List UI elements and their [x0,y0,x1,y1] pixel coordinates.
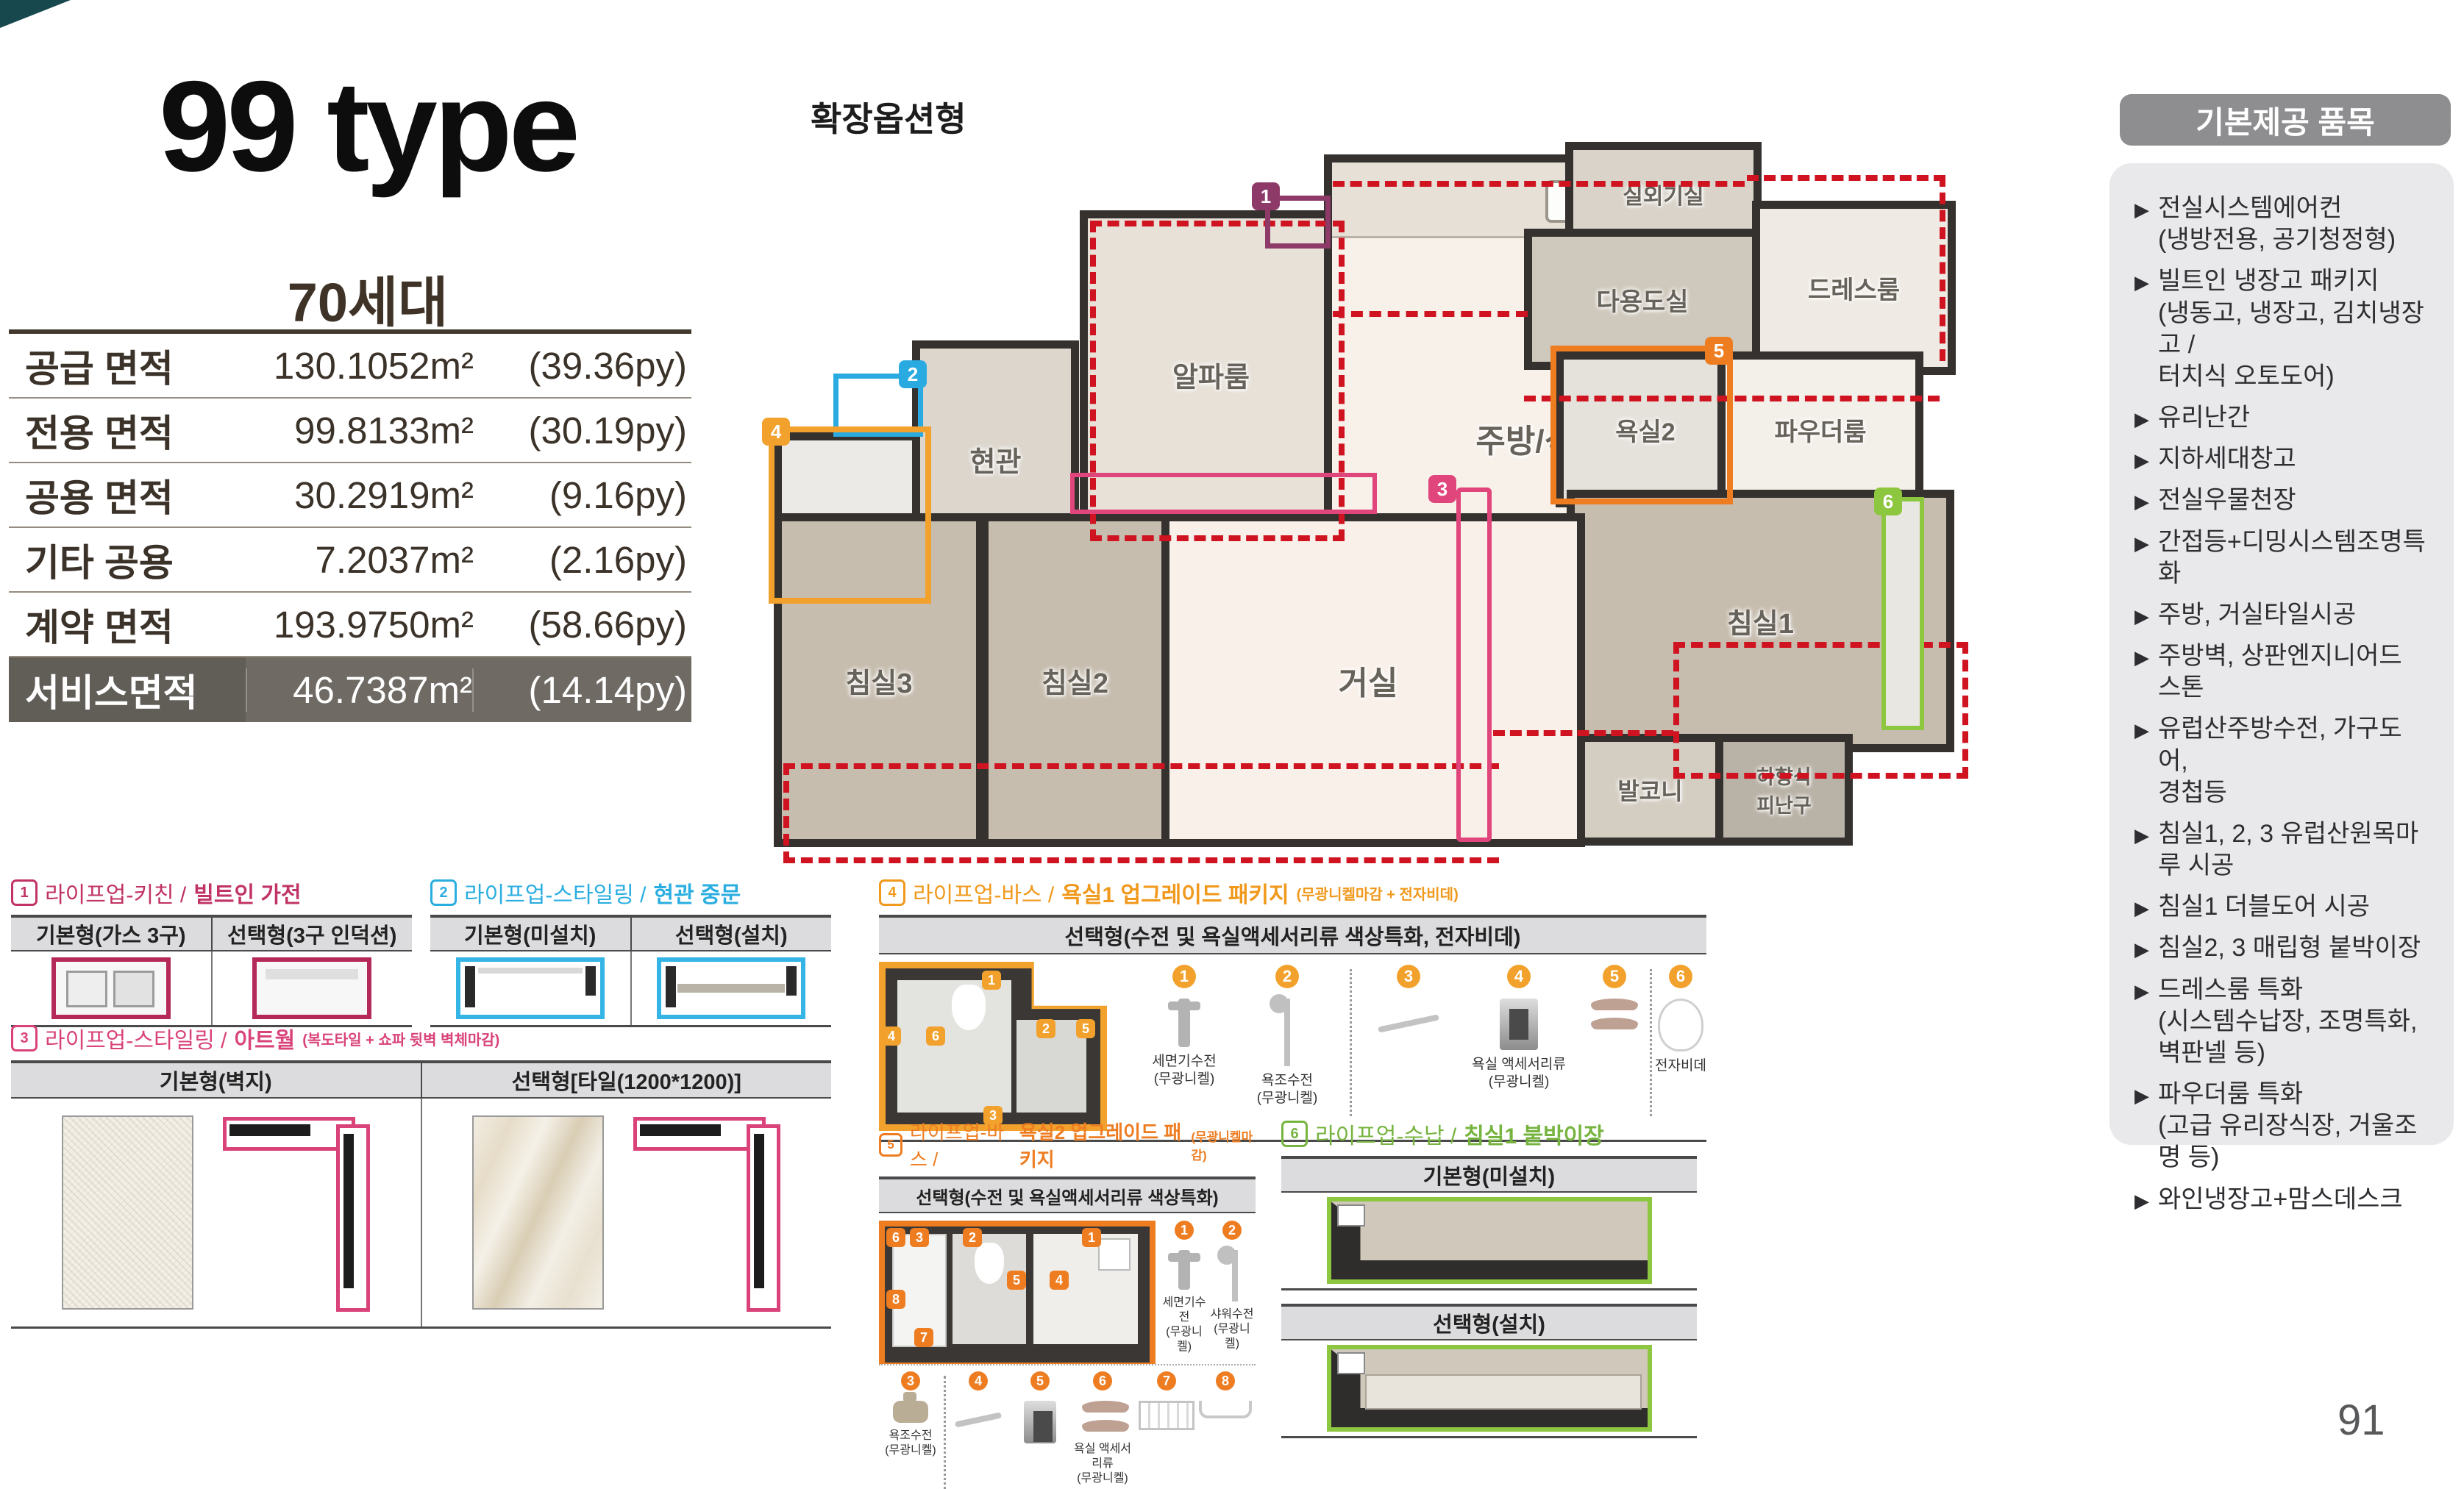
item-text: 유리난간 [2158,402,2250,434]
panel-title: 4 라이프업-바스 / 욕실1 업그레이드 패키지 (무광니켈마감 + 전자비데… [879,876,1706,909]
artwall-side-bar [336,1124,370,1312]
bullet-icon: ▶ [2134,532,2149,590]
item-label: 욕조수전 (무광니켈) [1239,1072,1335,1107]
mini-marker: 5 [1007,1271,1026,1290]
panel-body [1281,1340,1697,1438]
item-text: 파우더룸 특화 (고급 유리장식장, 거울조명 등) [2158,1079,2432,1174]
item-handle: 8 [1198,1371,1253,1418]
entry-plan-icon [456,957,605,1019]
area-label: 계약 면적 [9,597,246,651]
towel-bar-icon [955,1412,1002,1427]
area-sqm: 193.9750m² [246,603,474,646]
entry-plan-icon [657,957,805,1019]
bullet-icon: ▶ [2134,1189,2149,1215]
panel-category: 라이프업-스타일링 / [45,1022,227,1054]
bidet-icon [1658,999,1703,1051]
burner-icon [66,971,107,1007]
column-header: 선택형[타일(1200*1200)] [421,1063,832,1097]
bullet-icon: ▶ [2134,407,2149,434]
panel-header-row: 기본형(미설치) [1281,1156,1697,1193]
panel-header-row: 선택형(수전 및 욕실액세서리류 색상특화) [879,1176,1256,1213]
list-item: ▶전실우물천장 [2134,485,2432,516]
mini-marker: 6 [926,1026,945,1046]
mini-marker: 7 [914,1328,933,1347]
artwall-top-bar [633,1117,766,1151]
expansion-dashed-mid [1333,311,1528,317]
panel-title: 6 라이프업-수납 / 침실1 붙박이장 [1281,1118,1697,1150]
list-item: ▶유리난간 [2134,402,2432,434]
towel-rack-icon [1139,1401,1194,1430]
room-powder: 파우더룸 [1717,351,1923,507]
option-panel-bath1: 4 라이프업-바스 / 욕실1 업그레이드 패키지 (무광니켈마감 + 전자비데… [879,876,1706,1142]
item-number: 6 [1093,1371,1112,1390]
room-label: 침실1 [1727,601,1794,641]
panel-header-row: 선택형(설치) [1281,1304,1697,1340]
item-label: 욕실 액세서리류 (무광니켈) [1072,1442,1133,1486]
floor-plan-title: 확장옵션형 [811,93,966,141]
expansion-dashed-bottom [783,763,1499,863]
item-number: 1 [1175,1221,1194,1240]
bedroom1-plan-basic [1331,1201,1648,1279]
item-number: 1 [1172,965,1196,988]
mini-marker: 1 [982,971,1001,990]
brochure-page: 99 type 70세대 공급 면적 130.1052m² (39.36py) … [0,0,2464,1489]
item-text: 유럽산주방수전, 가구도어, 경첩등 [2158,713,2432,809]
tub-faucet-icon [893,1401,928,1423]
door-icon [1337,1204,1365,1226]
list-item: ▶빌트인 냉장고 패키지 (냉동고, 냉장고, 김치냉장고 / 터치식 오토도어… [2134,265,2432,393]
item-label: 세면기수전 (무광니켈) [1136,1053,1232,1088]
panel-name: 욕실2 업그레이드 패키지 [1019,1118,1183,1172]
grab-handle-icon [1199,1401,1252,1418]
list-item: ▶지하세대창고 [2134,443,2432,475]
provided-items-panel: ▶전실시스템에어컨 (냉방전용, 공기청정형) ▶빌트인 냉장고 패키지 (냉동… [2109,163,2454,1145]
mini-marker: 2 [963,1228,982,1247]
area-py: (39.36py) [474,344,691,388]
option-number-badge: 6 [1281,1121,1308,1147]
table-row: 전용 면적 99.8133m² (30.19py) [9,399,691,463]
column-header: 선택형(3구 인덕션) [211,918,413,950]
provided-items-header: 기본제공 품목 [2120,94,2451,146]
item-number: 7 [1157,1371,1176,1390]
item-text: 빌트인 냉장고 패키지 (냉동고, 냉장고, 김치냉장고 / 터치식 오토도어) [2158,265,2432,393]
list-item: ▶침실1, 2, 3 유럽산원목마루 시공 [2134,818,2432,882]
option4-bath1-zone [769,426,931,604]
option3-artwall-zone-horizontal [1070,473,1377,514]
item-text: 주방, 거실타일시공 [2158,599,2356,631]
table-row: 공급 면적 130.1052m² (39.36py) [9,334,691,399]
basin-icon [1098,1238,1130,1271]
area-sqm: 30.2919m² [246,474,474,517]
list-item: ▶와인냉장고+맘스데스크 [2134,1184,2432,1215]
panel-name: 아트월 [234,1022,295,1054]
bullet-icon: ▶ [2134,896,2149,923]
item-number: 4 [969,1371,988,1390]
cooktop-edge-icon [266,969,358,979]
list-item: ▶파우더룸 특화 (고급 유리장식장, 거울조명 등) [2134,1079,2432,1174]
optional-wardrobe-installed-image [1281,1340,1697,1436]
option-number-badge: 5 [879,1133,902,1157]
column-header: 선택형(설치) [630,918,832,950]
area-label: 공급 면적 [9,338,246,393]
door-icon [1337,1352,1365,1374]
plan-marker-2: 2 [899,360,927,388]
panel-body [11,951,412,1027]
bath1-mini-plan-walls [886,968,1100,1124]
table-row: 계약 면적 193.9750m² (58.66py) [9,593,691,657]
option-panel-entry-door: 2 라이프업-스타일링 / 현관 중문 기본형(미설치) 선택형(설치) [430,876,831,1027]
panel-header-row: 선택형(수전 및 욕실액세서리류 색상특화, 전자비데) [879,915,1706,954]
option-number-badge: 4 [879,879,905,906]
optional-door-installed-image [630,951,832,1025]
divider [944,1376,946,1489]
item-label: 욕실 액세서리류 (무광니켈) [1460,1056,1578,1091]
bullet-icon: ▶ [2134,1084,2149,1174]
accessory-plate-icon [1024,1401,1056,1443]
panel-body [1281,1193,1697,1290]
artwall-plan-outline [633,1117,780,1308]
panel-suffix: (복도타일 + 쇼파 뒷벽 벽체마감) [302,1028,499,1049]
room-label: 침실3 [845,660,912,701]
item-corner-shelf: 5 [1581,965,1648,1034]
toilet-icon [952,985,986,1030]
area-sqm: 99.8133m² [246,409,474,452]
area-py: (30.19py) [474,409,691,452]
list-item: ▶침실1 더블도어 시공 [2134,891,2432,923]
mini-marker: 3 [910,1228,929,1247]
burner-icon [113,971,154,1007]
room-label: 다용도실 [1596,282,1688,318]
shower-icon [1284,999,1290,1066]
wardrobe-plan-icon [1327,1345,1652,1432]
shower-icon [1232,1250,1238,1301]
room-label: 파우더룸 [1774,412,1866,448]
item-text: 침실1, 2, 3 유럽산원목마루 시공 [2158,818,2432,882]
list-item: ▶주방, 거실타일시공 [2134,599,2432,631]
option-number-badge: 3 [11,1025,38,1051]
option-number-badge: 2 [430,879,457,906]
list-item: ▶침실2, 3 매립형 붙박이장 [2134,932,2432,964]
panel-category: 라이프업-스타일링 / [464,876,646,909]
plan-marker-5: 5 [1705,337,1733,365]
option-panel-bath2: 5 라이프업-바스 / 욕실2 업그레이드 패키지 (무광니켈마감) 선택형(수… [879,1118,1256,1489]
sliding-door-icon [677,984,785,993]
wallpaper-swatch [62,1115,193,1310]
item-number: 5 [1603,965,1626,988]
wall-icon [1331,1260,1648,1279]
panel-suffix: (무광니켈마감) [1191,1126,1256,1163]
column-header: 선택형(설치) [1281,1307,1697,1339]
wardrobe-plan-icon [1327,1197,1652,1284]
item-number: 5 [1030,1371,1050,1390]
item-accessories: 4 욕실 액세서리류 (무광니켈) [1460,965,1578,1091]
item-number: 2 [1222,1221,1242,1240]
list-item: ▶유럽산주방수전, 가구도어, 경첩등 [2134,713,2432,809]
area-py: (58.66py) [474,603,691,646]
faucet-icon [1178,999,1190,1047]
option-number-badge: 1 [11,879,38,906]
panel-title: 2 라이프업-스타일링 / 현관 중문 [430,876,831,909]
optional-tile-cell [421,1099,832,1326]
divider [1650,969,1652,1116]
panel-title: 5 라이프업-바스 / 욕실2 업그레이드 패키지 (무광니켈마감) [879,1118,1256,1172]
item-label: 샤워수전 (무광니켈) [1210,1307,1254,1351]
item-basin-faucet: 1 세면기수전 (무광니켈) [1136,965,1232,1088]
panel-title: 1 라이프업-키친 / 빌트인 가전 [11,876,412,909]
mini-marker: 4 [882,1026,901,1046]
accessory-plate-icon [1500,999,1538,1050]
expansion-dashed-right [1747,175,1945,361]
artwall-top-bar [223,1117,355,1151]
item-text: 주방벽, 상판엔지니어드 스톤 [2158,640,2432,704]
bullet-icon: ▶ [2134,490,2149,516]
item-text: 와인냉장고+맘스데스크 [2158,1184,2403,1215]
item-shower-faucet: 2 샤워수전 (무광니켈) [1210,1221,1254,1351]
item-text: 지하세대창고 [2158,443,2296,475]
item-text: 전실우물천장 [2158,485,2296,516]
basic-no-door-image [430,951,630,1025]
artwall-plan-outline [223,1117,370,1308]
item-label: 욕조수전 (무광니켈) [882,1429,939,1458]
item-accessory-plate: 5 [1011,1371,1069,1443]
panel-name: 빌트인 가전 [193,876,301,909]
column-header: 기본형(벽지) [11,1063,421,1097]
area-label: 공용 면적 [9,468,246,522]
area-label: 서비스면적 [9,657,246,722]
panel-name: 욕실1 업그레이드 패키지 [1061,876,1289,909]
item-number: 3 [1397,965,1420,988]
area-py: (9.16py) [474,474,691,517]
household-count: 70세대 [51,259,684,338]
panel-name: 침실1 붙박이장 [1464,1118,1604,1150]
mini-marker: 8 [886,1290,905,1309]
panel-header-row: 기본형(벽지) 선택형[타일(1200*1200)] [11,1060,831,1099]
bedroom1-plan-installed [1331,1349,1648,1427]
basic-no-wardrobe-image [1281,1193,1697,1288]
corner-shelf-icon [1591,999,1638,1034]
panel-header-row: 기본형(가스 3구) 선택형(3구 인덕션) [11,915,412,951]
wall-icon [585,966,596,996]
panel-header-row: 기본형(미설치) 선택형(설치) [430,915,831,951]
item-towel-bar: 4 [950,1371,1007,1423]
table-row: 공용 면적 30.2919m² (9.16py) [9,463,691,528]
corner-shelf-icon [1082,1401,1123,1436]
basic-wallpaper-cell [11,1099,421,1326]
item-text: 침실2, 3 매립형 붙박이장 [2158,932,2421,964]
item-text: 침실1 더블도어 시공 [2158,891,2370,923]
panel-category: 라이프업-바스 / [910,1118,1012,1172]
faucet-icon [1178,1250,1190,1290]
panel-category: 라이프업-키친 / [45,876,186,909]
item-number: 8 [1216,1371,1235,1390]
column-header: 선택형(수전 및 욕실액세서리류 색상특화, 전자비데) [879,918,1706,953]
plan-marker-3: 3 [1428,475,1456,503]
expansion-dashed-living [1493,730,1673,736]
item-number: 3 [901,1371,920,1390]
provided-items-list: ▶전실시스템에어컨 (냉방전용, 공기청정형) ▶빌트인 냉장고 패키지 (냉동… [2134,193,2432,1215]
toilet-icon [975,1243,1004,1284]
area-sqm: 7.2037m² [246,538,474,582]
list-item: ▶간접등+디밍시스템조명특화 [2134,526,2432,590]
item-label: 전자비데 [1655,1057,1706,1075]
item-text: 전실시스템에어컨 (냉방전용, 공기청정형) [2158,193,2396,256]
option6-wardrobe-zone [1881,497,1924,730]
page-number: 91 [2337,1396,2385,1445]
area-table: 공급 면적 130.1052m² (39.36py) 전용 면적 99.8133… [9,329,691,722]
bullet-icon: ▶ [2134,198,2149,256]
marble-tile-swatch [472,1115,604,1310]
expansion-dashed-top [1333,181,1745,187]
mini-marker: 1 [1082,1228,1101,1247]
wall-icon [465,966,475,1007]
option-panel-artwall: 3 라이프업-스타일링 / 아트월 (복도타일 + 쇼파 뒷벽 벽체마감) 기본… [11,1022,831,1329]
plan-marker-6: 6 [1874,488,1902,515]
area-sqm: 130.1052m² [246,344,474,388]
item-tub-faucet: 3 욕조수전 (무광니켈) [882,1371,939,1458]
area-py: (2.16py) [474,538,691,582]
option-panel-kitchen: 1 라이프업-키친 / 빌트인 가전 기본형(가스 3구) 선택형(3구 인덕션… [11,876,412,1027]
area-sqm: 46.7387m² [246,668,472,712]
divider [1350,969,1352,1116]
column-header: 기본형(가스 3구) [11,918,211,950]
artwall-side-bar [747,1124,780,1312]
room-label: 침실2 [1041,660,1108,701]
bullet-icon: ▶ [2134,271,2149,393]
wall-icon [666,966,676,1007]
item-corner-shelf: 6 욕실 액세서리류 (무광니켈) [1072,1371,1133,1486]
gas-cooktop-icon [51,957,171,1019]
floor-plan: 확장옵션형 욕실1 현관 알파룸 팬트리 주방/식당 실외기실 다용도실 드레스… [758,87,1956,859]
panel-suffix: (무광니켈마감 + 전자비데) [1297,882,1459,904]
item-number: 6 [1669,965,1692,988]
induction-cooktop-icon [252,957,371,1019]
room-label: 현관 [970,439,1022,479]
item-tub-shower: 2 욕조수전 (무광니켈) [1239,965,1335,1107]
panel-body [430,951,831,1027]
item-number: 4 [1507,965,1531,988]
wall-icon [786,966,797,996]
item-number: 2 [1275,965,1299,988]
list-item: ▶전실시스템에어컨 (냉방전용, 공기청정형) [2134,193,2432,256]
option3-artwall-zone-vertical [1456,488,1492,842]
table-row: 기타 공용 7.2037m² (2.16py) [9,528,691,593]
area-py: (14.14py) [472,668,691,712]
item-towel-rack: 7 [1138,1371,1195,1430]
bullet-icon: ▶ [2134,646,2149,704]
panel-category: 라이프업-바스 / [913,876,1054,909]
bullet-icon: ▶ [2134,718,2149,809]
column-header: 기본형(미설치) [1281,1159,1697,1191]
wall-icon [1331,1408,1648,1427]
item-basin-faucet: 1 세면기수전 (무광니켈) [1162,1221,1206,1354]
panel-name: 현관 중문 [653,876,741,909]
area-label: 기타 공용 [9,532,246,587]
table-row-service-area: 서비스면적 46.7387m² (14.14py) [9,657,691,722]
towel-bar-icon [1378,1014,1439,1032]
threshold-icon [478,968,583,974]
bath2-mini-plan: 6 3 2 5 8 7 1 4 [879,1221,1156,1368]
option-panel-wardrobe: 6 라이프업-수납 / 침실1 붙박이장 기본형(미설치) 선택형(설치) [1281,1118,1697,1438]
panel-body: 1 6 4 2 5 3 1 세면기수전 (무광니켈) 2 욕조수전 (무광니켈)… [879,954,1706,1142]
list-item: ▶주방벽, 상판엔지니어드 스톤 [2134,640,2432,704]
room-label: 거실 [1339,657,1398,704]
mini-marker: 6 [886,1228,905,1247]
item-bidet: 6 전자비데 [1655,965,1706,1075]
optional-induction-image [211,951,413,1025]
panel-body: 6 3 2 5 8 7 1 4 1 세면기수전 (무광니켈) 2 샤워수전 (무… [879,1213,1256,1364]
column-header: 기본형(미설치) [430,918,630,950]
list-item: ▶드레스룸 특화 (시스템수납장, 조명특화, 벽판넬 등) [2134,974,2432,1070]
bullet-icon: ▶ [2134,604,2149,631]
area-label: 전용 면적 [9,403,246,457]
item-label: 세면기수전 (무광니켈) [1162,1296,1206,1354]
mini-marker: 4 [1050,1271,1069,1290]
panel-title: 3 라이프업-스타일링 / 아트월 (복도타일 + 쇼파 뒷벽 벽체마감) [11,1022,831,1054]
option5-bath2-zone [1550,346,1733,504]
basic-gas-cooktop-image [11,951,211,1025]
item-text: 드레스룸 특화 (시스템수납장, 조명특화, 벽판넬 등) [2158,974,2417,1070]
item-text: 간접등+디밍시스템조명특화 [2158,526,2432,590]
bath1-mini-plan: 1 6 4 2 5 3 [879,962,1107,1131]
mini-marker: 2 [1036,1019,1055,1038]
mini-marker: 5 [1076,1019,1095,1038]
bullet-icon: ▶ [2134,824,2149,882]
column-header: 선택형(수전 및 욕실액세서리류 색상특화) [879,1179,1256,1212]
corner-triangle-decoration [0,0,71,28]
plan-marker-4: 4 [762,418,790,446]
bullet-icon: ▶ [2134,449,2149,475]
panel-bottom-row: 3 욕조수전 (무광니켈) 4 5 6 욕실 액세서리류 (무광니켈) 7 [879,1364,1256,1489]
panel-body [11,1099,831,1329]
bullet-icon: ▶ [2134,938,2149,964]
plan-marker-1: 1 [1252,182,1280,210]
item-towel-bar: 3 [1364,965,1453,1026]
bullet-icon: ▶ [2134,979,2149,1070]
panel-category: 라이프업-수납 / [1315,1118,1456,1150]
unit-type-title: 99 type [51,53,684,201]
